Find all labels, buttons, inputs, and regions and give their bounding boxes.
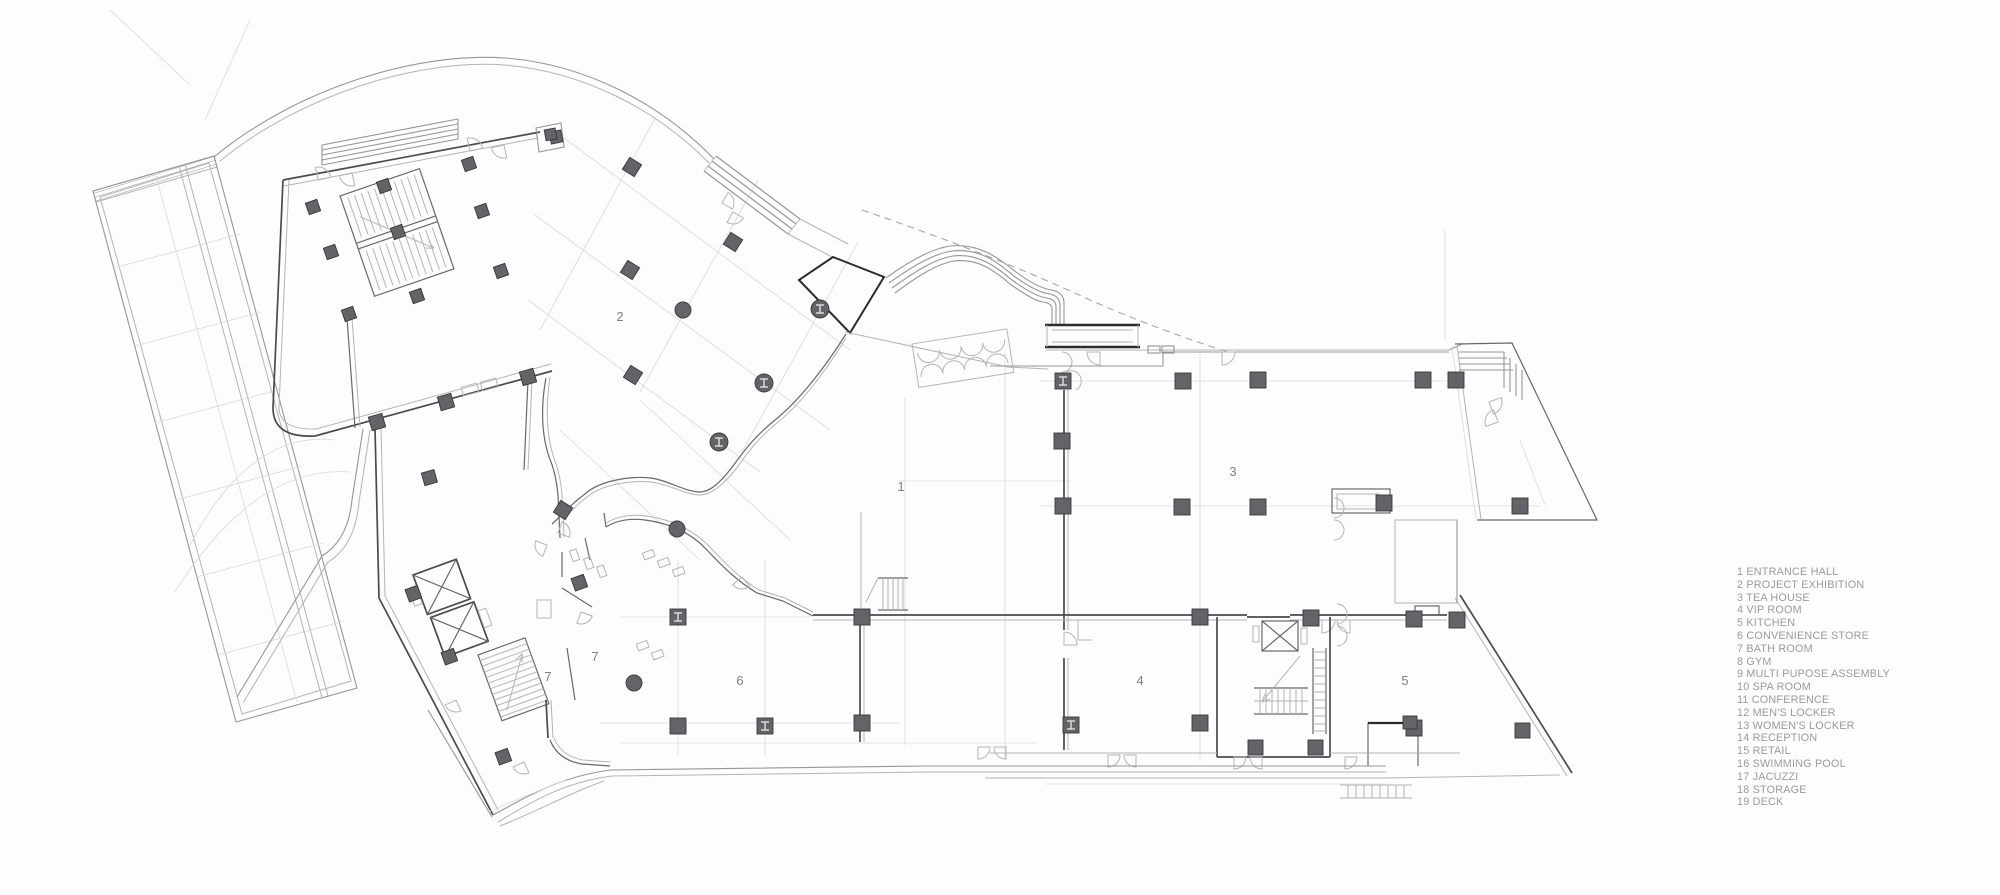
room-label-1: 1 xyxy=(897,479,904,494)
legend-item: 9 MULTI PUPOSE ASSEMBLY xyxy=(1737,668,1890,681)
parking-band xyxy=(93,156,357,722)
legend-item: 18 STORAGE xyxy=(1737,784,1890,797)
legend-item: 6 CONVENIENCE STORE xyxy=(1737,630,1890,643)
legend-item: 2 PROJECT EXHIBITION xyxy=(1737,579,1890,592)
legend-item: 13 WOMEN'S LOCKER xyxy=(1737,720,1890,733)
legend-item: 17 JACUZZI xyxy=(1737,771,1890,784)
upper-wing-columns xyxy=(305,130,563,322)
legend-item: 10 SPA ROOM xyxy=(1737,681,1890,694)
room-label-4: 4 xyxy=(1136,673,1143,688)
room-label-3: 3 xyxy=(1229,464,1236,479)
legend-item: 19 DECK xyxy=(1737,796,1890,809)
room-label-6: 6 xyxy=(736,673,743,688)
elevators xyxy=(405,556,497,661)
deck-edges xyxy=(488,743,1560,826)
upper-left-wing xyxy=(273,119,564,436)
floor-plan-drawing: 1 2 3 4 5 6 7 7 xyxy=(0,0,2000,895)
diamond-columns xyxy=(553,157,742,519)
ramp-landing xyxy=(1045,325,1140,347)
entrance-area xyxy=(214,57,1228,390)
legend-item: 16 SWIMMING POOL xyxy=(1737,758,1890,771)
round-columns xyxy=(626,300,829,691)
legend-item: 4 VIP ROOM xyxy=(1737,604,1890,617)
room-label-7b: 7 xyxy=(591,649,598,664)
grid-columns xyxy=(544,128,1530,755)
legend-item: 3 TEA HOUSE xyxy=(1737,592,1890,605)
legend-item: 12 MEN'S LOCKER xyxy=(1737,707,1890,720)
planting-bed xyxy=(912,329,1014,387)
vip-kitchen-block xyxy=(813,498,1572,776)
exterior-steps xyxy=(322,119,458,165)
tea-house-wing xyxy=(990,343,1597,750)
entry-stair xyxy=(704,156,800,234)
entrance-hall xyxy=(552,334,846,524)
legend-item: 8 GYM xyxy=(1737,656,1890,669)
floor-plan-page: 1 2 3 4 5 6 7 7 1 ENTRANCE HALL 2 PROJEC… xyxy=(0,0,2000,895)
room-label-5: 5 xyxy=(1401,673,1408,688)
elevator-stair-core xyxy=(1217,617,1330,757)
small-stair xyxy=(866,578,908,610)
legend-item: 5 KITCHEN xyxy=(1737,617,1890,630)
lower-wing-columns xyxy=(368,368,587,765)
wing-stair xyxy=(478,638,549,721)
deck-stair xyxy=(1340,785,1412,798)
legend-item: 11 CONFERENCE xyxy=(1737,694,1890,707)
legend-item: 15 RETAIL xyxy=(1737,745,1890,758)
legend-item: 1 ENTRANCE HALL xyxy=(1737,566,1890,579)
room-label-7a: 7 xyxy=(544,669,551,684)
curved-ramp xyxy=(886,246,1064,324)
bath-rooms xyxy=(532,377,813,766)
legend-item: 14 RECEPTION xyxy=(1737,732,1890,745)
room-number-labels: 1 2 3 4 5 6 7 7 xyxy=(544,309,1408,688)
legend-item: 7 BATH ROOM xyxy=(1737,643,1890,656)
columns xyxy=(305,128,1530,765)
room-label-2: 2 xyxy=(616,309,623,324)
corner-steps xyxy=(1459,352,1522,400)
room-legend: 1 ENTRANCE HALL 2 PROJECT EXHIBITION 3 T… xyxy=(1737,566,1890,809)
